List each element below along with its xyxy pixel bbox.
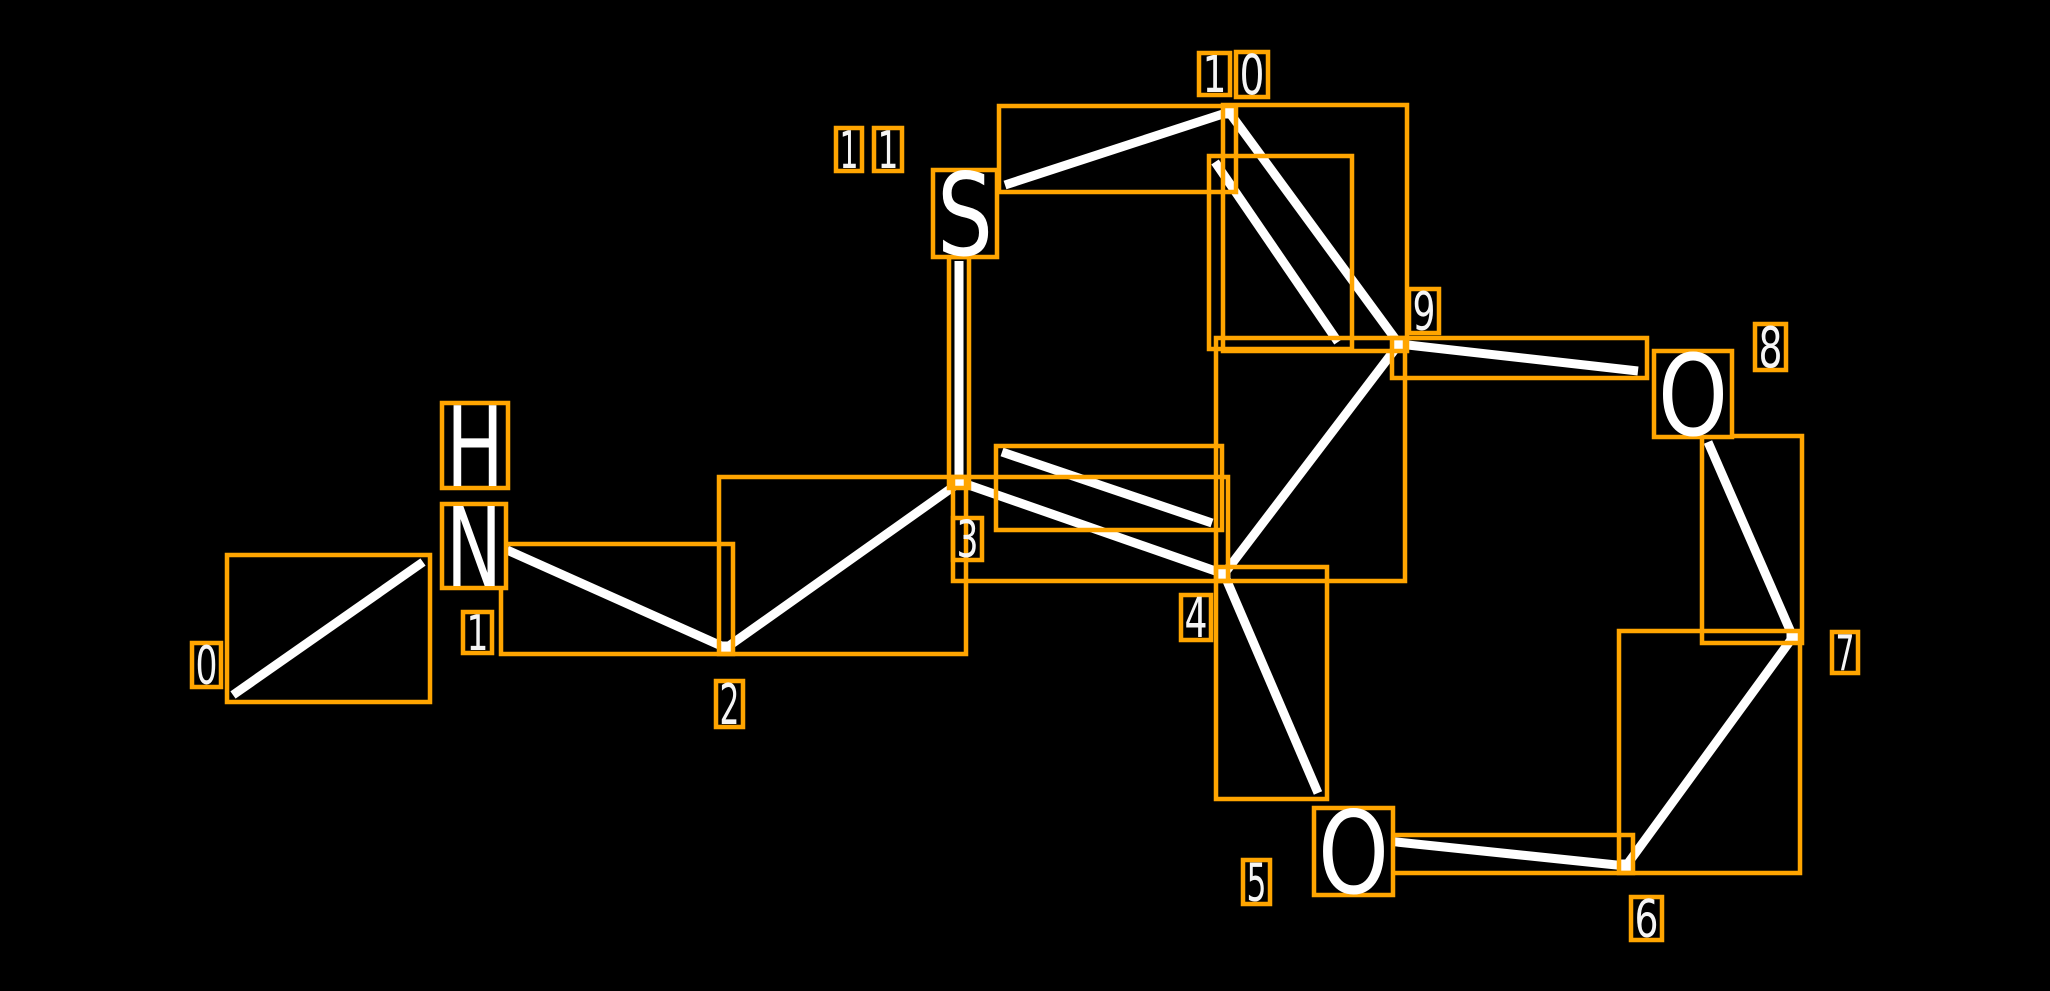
index-label-11-d0: 1 xyxy=(840,121,859,181)
index-label-1: 1 xyxy=(467,605,489,662)
atom-label-n-1: N xyxy=(446,484,502,612)
vertex-marker-atom-6 xyxy=(1620,860,1633,873)
index-label-10-d1: 0 xyxy=(1240,43,1265,107)
index-label-2: 2 xyxy=(720,673,740,738)
index-label-4: 4 xyxy=(1185,586,1208,650)
index-label-6: 6 xyxy=(1635,890,1659,950)
background xyxy=(0,0,2050,991)
index-label-9: 9 xyxy=(1413,282,1436,343)
index-label-3: 3 xyxy=(957,511,979,570)
index-label-8: 8 xyxy=(1759,316,1783,381)
index-label-10-d0: 1 xyxy=(1203,46,1227,105)
molecule-canvas: HNSOO01234567891011 xyxy=(0,0,2050,991)
index-label-11-d1: 1 xyxy=(878,121,899,181)
index-label-0: 0 xyxy=(196,636,218,697)
molecule-visualization: HNSOO01234567891011 xyxy=(0,0,2050,991)
atom-label-o-8: O xyxy=(1658,332,1728,462)
atom-label-s-11: S xyxy=(937,149,993,282)
index-label-5: 5 xyxy=(1247,853,1267,914)
atom-label-o-5: O xyxy=(1318,787,1389,920)
index-label-7: 7 xyxy=(1836,625,1855,682)
